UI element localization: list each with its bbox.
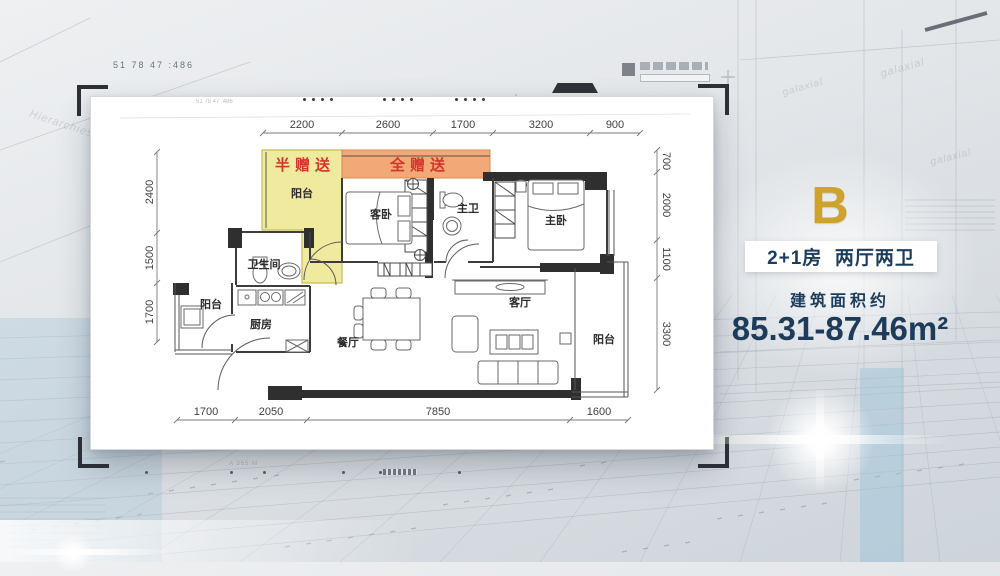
page: { "panel": { "block_letter": "B", "title… bbox=[0, 0, 1000, 562]
dim-label: 2000 bbox=[660, 193, 672, 217]
dim-label: 1100 bbox=[660, 247, 672, 271]
room-label-balcony-right: 阳台 bbox=[593, 332, 615, 346]
card-top-tab bbox=[552, 83, 598, 93]
room-label-bathroom: 卫生间 bbox=[248, 257, 281, 271]
room-label-living: 客厅 bbox=[508, 295, 531, 309]
room-label-balcony-left: 阳台 bbox=[200, 297, 222, 311]
gift-label-half: 半赠送 bbox=[275, 156, 335, 174]
dim-label: 1700 bbox=[451, 119, 475, 131]
svg-text:51 78 47 :486: 51 78 47 :486 bbox=[196, 99, 233, 105]
edge-dot-row-bottom bbox=[145, 461, 467, 479]
under-card-barcode bbox=[383, 469, 417, 475]
title-block-lines bbox=[640, 62, 708, 70]
under-card-mark: A 365 M bbox=[229, 461, 258, 467]
room-label-dining: 餐厅 bbox=[336, 335, 359, 349]
room-label-balcony-top: 阳台 bbox=[291, 186, 313, 200]
room-label-master-bath: 主卫 bbox=[457, 201, 479, 215]
gift-label-full: 全赠送 bbox=[389, 156, 450, 174]
dim-label: 1700 bbox=[194, 406, 218, 418]
dim-label: 2400 bbox=[144, 180, 156, 204]
dim-label: 7850 bbox=[426, 406, 450, 418]
room-label-master-bedroom: 主卧 bbox=[545, 213, 567, 227]
block-letter: B bbox=[798, 176, 862, 236]
dim-label: 3200 bbox=[529, 119, 553, 131]
dim-label: 2600 bbox=[376, 119, 400, 131]
dim-label: 700 bbox=[660, 152, 672, 170]
area-label: 建筑面积约 bbox=[720, 287, 960, 311]
card-tiny-annotations: 51 78 47 :486 bbox=[196, 99, 233, 105]
ruler-annotation: 51 78 47 :486 bbox=[113, 60, 194, 70]
dim-label: 2050 bbox=[259, 406, 283, 418]
floorplan-drawing: 51 78 47 :486 bbox=[90, 96, 712, 448]
dim-label: 900 bbox=[606, 119, 624, 131]
area-value: 85.31-87.46m² bbox=[700, 310, 980, 348]
unit-title: 2+1房 两厅两卫 bbox=[767, 243, 915, 270]
room-label-kitchen: 厨房 bbox=[250, 317, 272, 331]
dim-label: 3300 bbox=[660, 322, 672, 346]
dim-label: 1500 bbox=[144, 246, 156, 270]
room-label-guest-bedroom: 客卧 bbox=[369, 207, 392, 221]
title-block-lines-2 bbox=[640, 74, 710, 82]
dim-label: 1700 bbox=[144, 300, 156, 324]
lens-flare-streak-v bbox=[816, 386, 824, 494]
unit-title-band: 2+1房 两厅两卫 bbox=[745, 241, 937, 272]
dim-label: 1600 bbox=[587, 406, 611, 418]
dim-label: 2200 bbox=[290, 119, 314, 131]
lens-flare-small-streak bbox=[0, 549, 170, 555]
title-block-chip bbox=[622, 63, 635, 76]
